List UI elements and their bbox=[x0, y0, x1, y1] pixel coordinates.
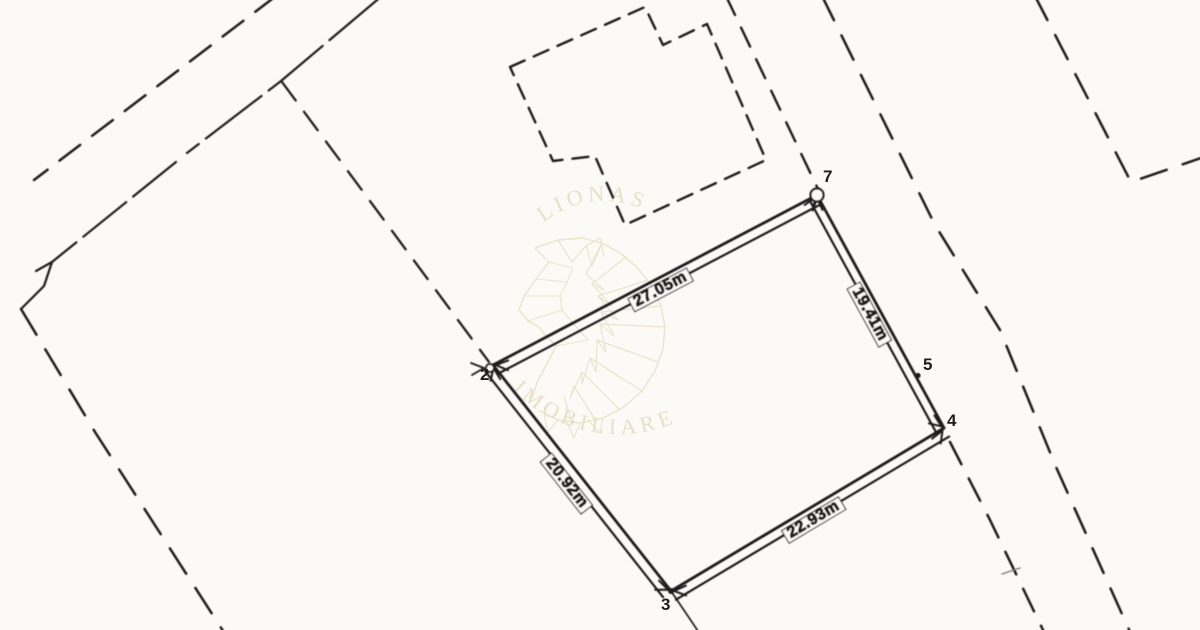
svg-text:5: 5 bbox=[923, 355, 932, 374]
svg-text:3: 3 bbox=[661, 595, 670, 614]
svg-text:2: 2 bbox=[480, 365, 489, 384]
svg-text:7: 7 bbox=[823, 167, 832, 186]
svg-text:4: 4 bbox=[947, 411, 957, 430]
